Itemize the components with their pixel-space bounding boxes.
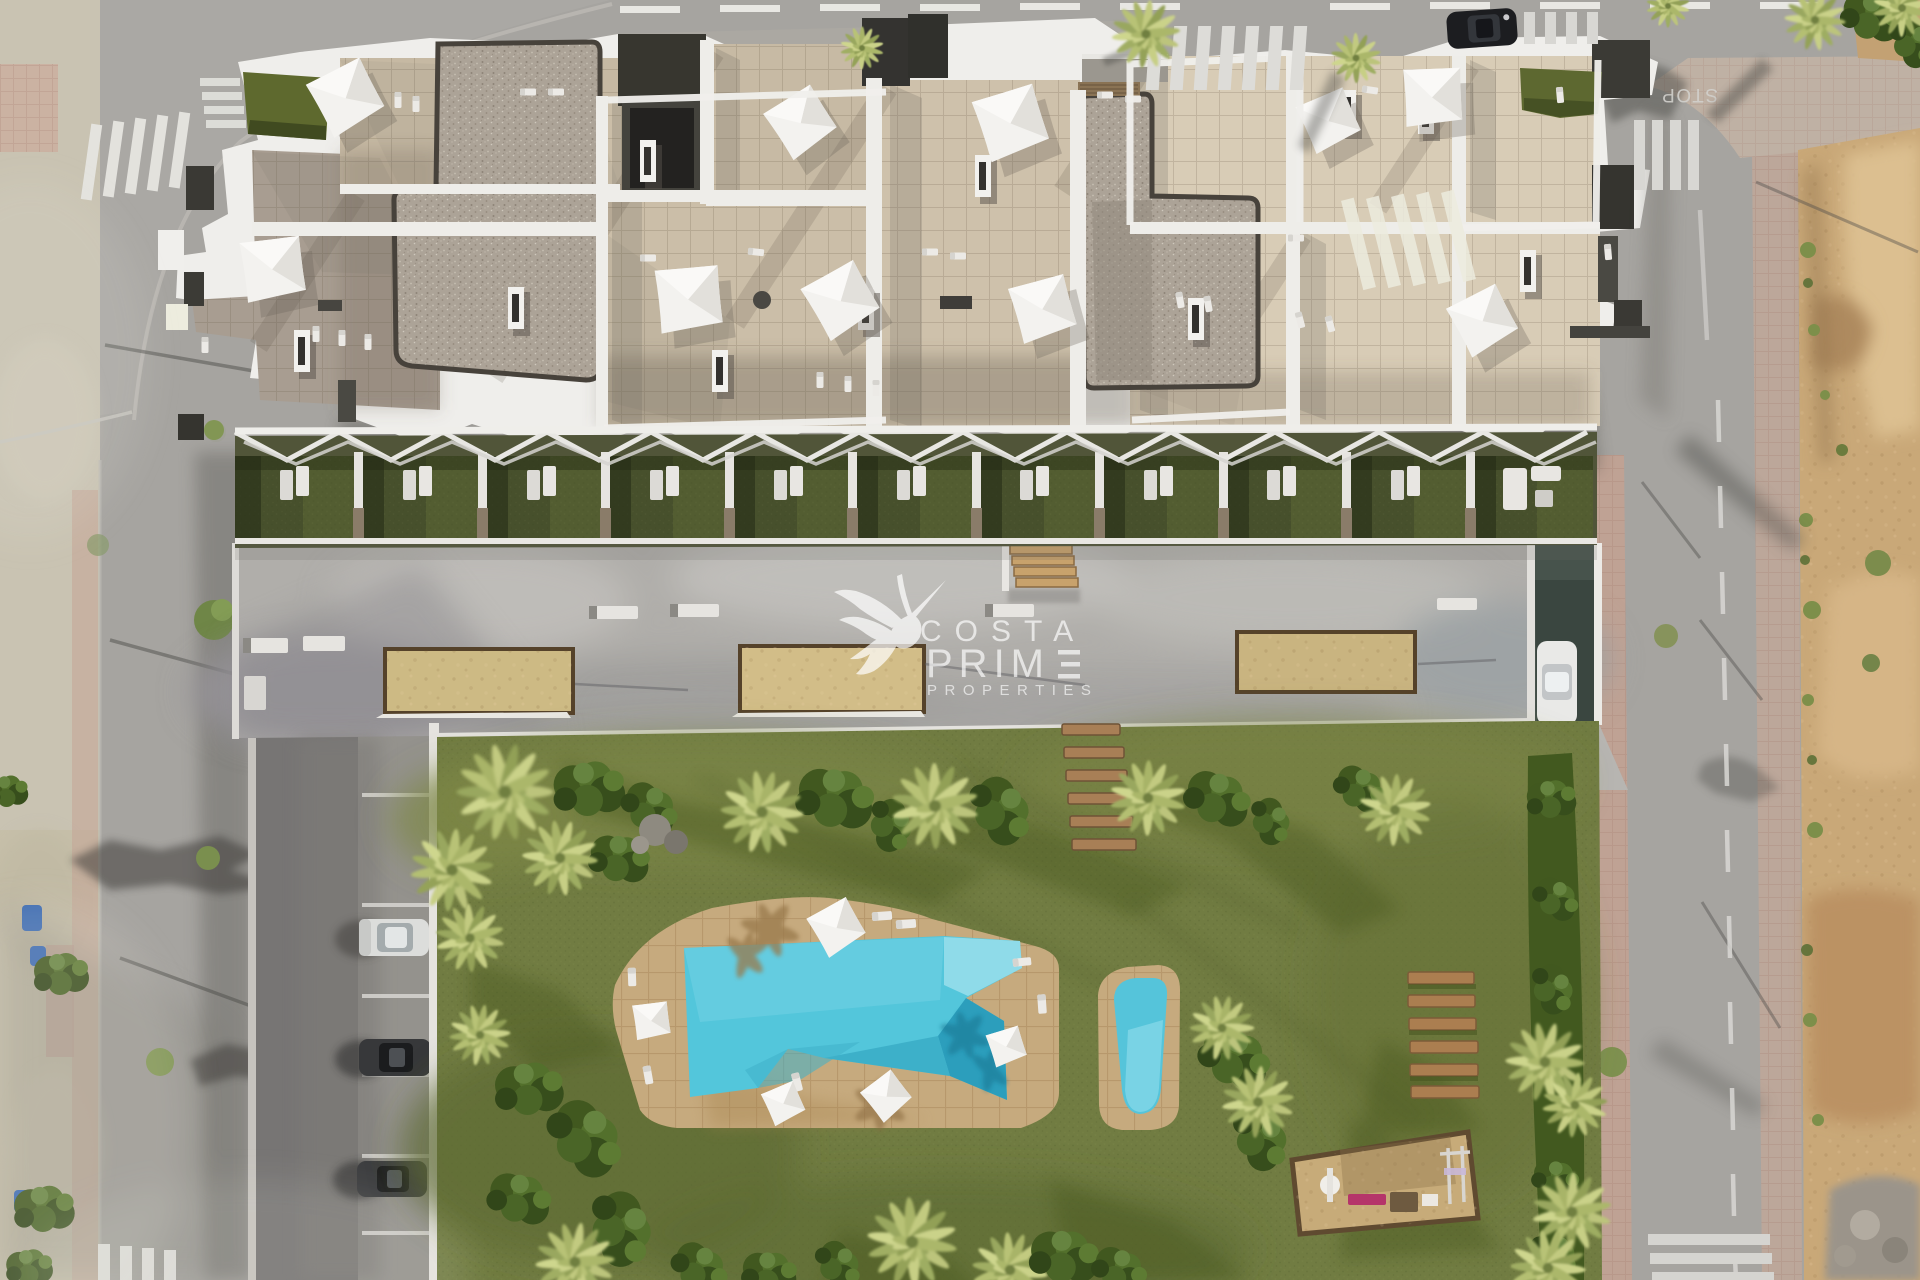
svg-text:STOP: STOP [1661, 84, 1718, 105]
svg-text:PROPERTIES: PROPERTIES [927, 682, 1098, 699]
svg-text:PRIM: PRIM [926, 642, 1050, 686]
